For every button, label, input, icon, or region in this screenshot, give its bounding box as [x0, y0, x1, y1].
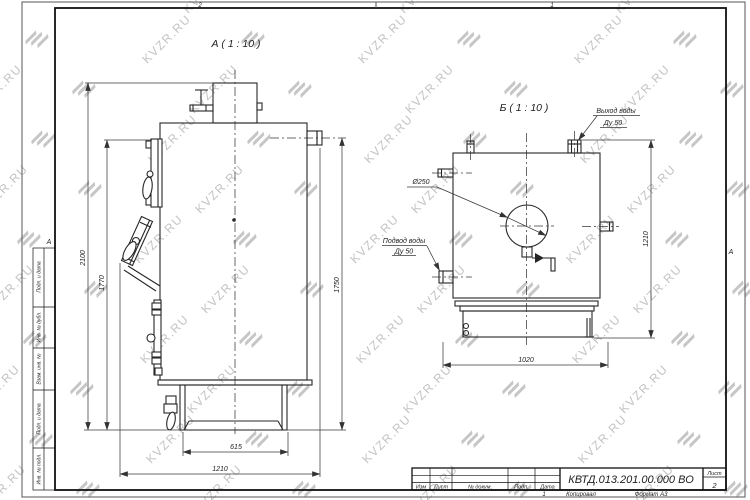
outlet-label-line2: Ду 50 [603, 120, 622, 127]
drawing-sheet: KVZR.RUKVZR.RUKVZR.RUKVZR.RUKVZR.RUKVZR.… [0, 0, 750, 500]
drawing-canvas: 2 1 А А Подп. и дата Инв. № дубл. Взам. … [0, 0, 750, 500]
view-a-title: А ( 1 : 10 ) [210, 38, 260, 50]
dim-1750: 1750 [334, 277, 341, 293]
diameter-label: Ø250 [411, 179, 429, 186]
side-cell-label: Взам. инв. № [37, 353, 43, 385]
stamp-col-podp: Подп. [514, 485, 529, 491]
document-number: КВТД.013.201.00.000 ВО [568, 474, 694, 486]
stamp-col-data: Дата [539, 485, 555, 491]
zone-letter-left: А [46, 239, 52, 246]
zone-number-left: 2 [197, 3, 202, 9]
side-column-cells: Подп. и дата Инв. № дубл. Взам. инв. № П… [33, 248, 55, 490]
sheet-number: 2 [711, 481, 717, 490]
stamp-col-dokum: № докум. [468, 485, 492, 491]
view-a-drawing: А ( 1 : 10 ) [80, 38, 346, 477]
dim-2100: 2100 [80, 250, 87, 267]
stamp-col-list: Лист [433, 485, 449, 491]
side-cell-label: Инв. № дубл. [37, 312, 43, 343]
zone-letter-right: А [728, 249, 734, 256]
dim-1770: 1770 [99, 275, 106, 291]
footer-copied: Копировал [566, 492, 596, 498]
dim-1020: 1020 [518, 357, 534, 364]
inlet-label-line1: Подвод воды [383, 237, 426, 245]
title-block: Изм Лист № докум. Подп. Дата КВТД.013.20… [412, 468, 726, 498]
stamp-col-izm: Изм [416, 485, 426, 491]
footer-number: 1 [542, 492, 545, 498]
inlet-label-line2: Ду 50 [394, 249, 413, 256]
footer-format: Формат А3 [635, 492, 668, 498]
dim-1210-height: 1210 [643, 231, 650, 247]
side-cell-label: Подп. и дата [37, 403, 43, 435]
zone-number-right: 1 [550, 3, 553, 9]
side-cell-label: Подп. и дата [37, 261, 43, 293]
sheet-label: Лист [706, 471, 722, 477]
dim-615: 615 [230, 444, 242, 451]
view-b-drawing: Б ( 1 : 10 ) [382, 102, 655, 368]
dim-1210-depth: 1210 [212, 466, 228, 473]
outlet-label-line1: Выход воды [596, 107, 636, 115]
side-cell-label: Инв. № подл. [37, 453, 43, 484]
view-b-title: Б ( 1 : 10 ) [500, 102, 549, 114]
